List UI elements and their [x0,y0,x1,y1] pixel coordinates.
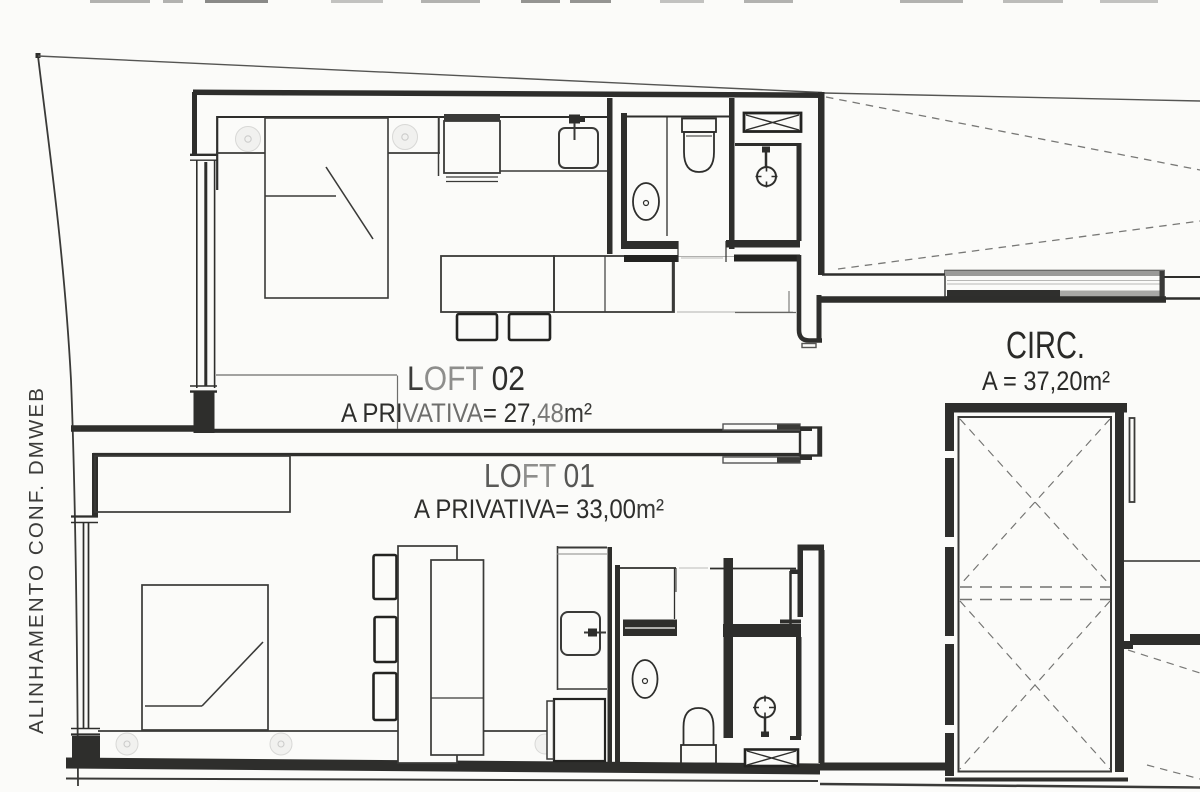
svg-text:A PRIVATIVA= 27,48m²: A PRIVATIVA= 27,48m² [341,398,592,428]
svg-text:LOFT 02: LOFT 02 [407,360,525,398]
svg-text:A = 37,20m²: A = 37,20m² [982,366,1110,396]
svg-text:A PRIVATIVA= 33,00m²: A PRIVATIVA= 33,00m² [414,494,664,524]
svg-text:CIRC.: CIRC. [1006,325,1085,367]
svg-text:ALINHAMENTO CONF. DMWEB: ALINHAMENTO CONF. DMWEB [25,388,48,734]
svg-text:LOFT 01: LOFT 01 [484,457,595,494]
